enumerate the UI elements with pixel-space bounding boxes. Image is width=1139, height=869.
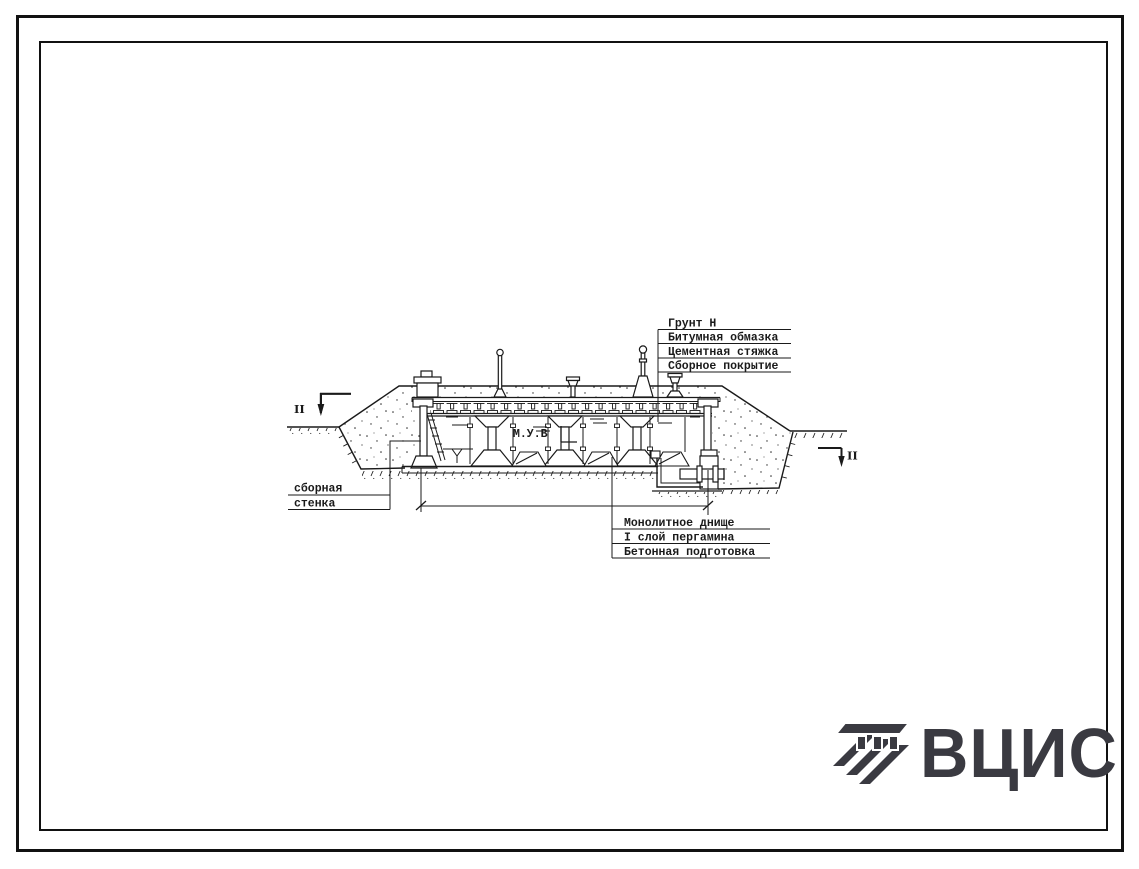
ladder	[427, 413, 445, 461]
section-marker-right: II	[818, 448, 858, 467]
level-mark	[443, 449, 473, 463]
right-wall-flange	[701, 450, 717, 456]
callout-label: Грунт Н	[668, 318, 716, 331]
column	[544, 416, 586, 466]
drawing-sheet: М.У.В Грунт Н Битумная обмазка Цементная…	[0, 0, 1139, 869]
vent-pipe-tall	[633, 346, 653, 397]
columns	[471, 416, 658, 466]
section-label: II	[294, 402, 305, 416]
callout-label: Монолитное днище	[624, 517, 735, 530]
column	[471, 416, 513, 466]
vcis-logo-text: ВЦИС	[920, 719, 1118, 789]
section-label: II	[847, 449, 858, 463]
callout-label: стенка	[294, 498, 336, 511]
callout-label: Цементная стяжка	[668, 346, 779, 359]
section-marker-left: II	[294, 393, 351, 416]
callout-label: Сборное покрытие	[668, 360, 779, 373]
callout-label: Битумная обмазка	[668, 332, 779, 345]
vent-cap-small	[667, 374, 683, 398]
vcis-logo: ВЦИС	[833, 720, 1118, 794]
left-wall	[420, 406, 427, 456]
water-level-label: М.У.В	[513, 428, 548, 441]
roof-hatch	[414, 371, 441, 397]
tank-roof	[412, 397, 720, 416]
outlet-pipe	[680, 466, 724, 482]
floor-pads	[512, 452, 689, 466]
roof-rib-slabs	[430, 403, 702, 413]
vcis-mark-icon	[833, 720, 911, 794]
callout-label: Бетонная подготовка	[624, 546, 755, 559]
callout-label: сборная	[294, 483, 342, 496]
right-wall	[704, 406, 711, 454]
callout-label: I слой пергамина	[624, 532, 735, 545]
